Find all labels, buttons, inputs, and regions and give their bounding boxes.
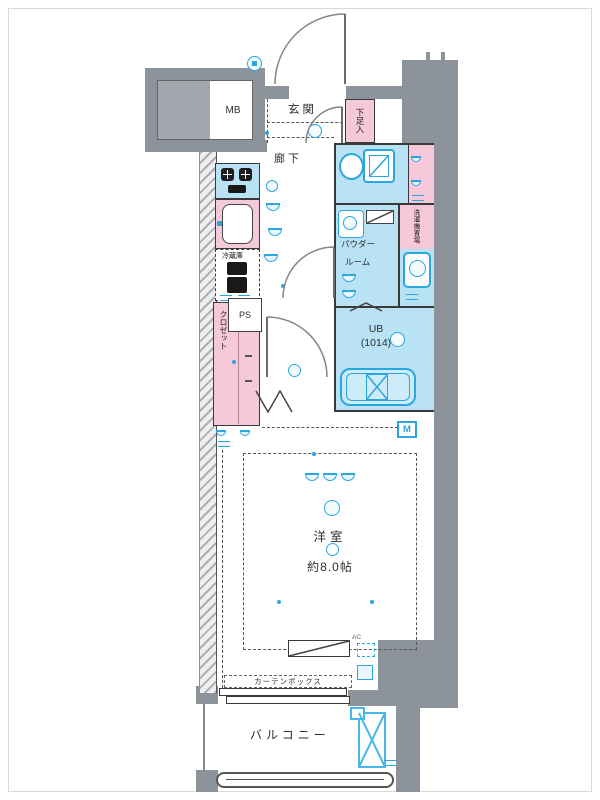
floorplan-page: MB 玄関 下足入 廊下 冷蔵庫 <box>0 0 600 800</box>
shower-icon <box>390 332 405 347</box>
light-icon-hall <box>288 364 301 377</box>
toilet-bowl-icon <box>339 153 364 180</box>
powder-room-label-2: ルーム <box>345 256 370 268</box>
wall-balcony-top-right <box>396 690 458 708</box>
wall-toilet-powder <box>334 203 434 205</box>
ceiling-light-icon <box>266 180 278 192</box>
entrance-step-dash-2 <box>267 137 334 138</box>
room-size-label: 約8.0帖 <box>245 558 415 575</box>
wall-vent-tick-1 <box>426 52 430 60</box>
hanger-mark <box>245 380 252 382</box>
powder-room-label-1: パウダー <box>341 238 375 250</box>
wall-vent-tick-2 <box>441 52 445 60</box>
bathtub-drain-box <box>366 374 388 400</box>
sliding-window-sash-1 <box>219 688 347 696</box>
dimension-mark <box>218 441 230 447</box>
pipe-space: PS <box>228 298 262 332</box>
closet-dot <box>232 360 236 364</box>
western-room-label: 洋室 <box>245 526 415 545</box>
refrigerator-label: 冷蔵庫 <box>222 251 243 261</box>
sliding-window-sash-2 <box>226 696 350 704</box>
wall-balcony-right <box>396 708 420 792</box>
wall-mb-bottom <box>145 140 267 152</box>
ac-unit-icon <box>357 643 375 657</box>
wall-ub-bottom <box>334 410 434 412</box>
wall-powder-laundry <box>398 205 400 306</box>
meter-badge-label: M <box>403 424 411 435</box>
ac-label: AC <box>352 634 361 641</box>
pipe-space-label: PS <box>239 310 251 320</box>
balcony-railing <box>216 772 394 788</box>
meter-badge: M <box>397 421 417 438</box>
wall-right <box>434 145 458 695</box>
stove-burner-icon <box>221 168 234 181</box>
wall-under-window <box>348 690 396 706</box>
laundry-space-label: 洗濯機置場 <box>410 209 420 244</box>
wall-mb-top <box>145 68 265 80</box>
ac-pipe-icon <box>357 665 373 680</box>
balcony-railing-line <box>226 779 384 780</box>
intercom-dot <box>252 61 257 66</box>
window-counter <box>288 640 350 657</box>
grill-icon <box>228 185 246 193</box>
wall-entrance-left <box>265 86 289 99</box>
balcony-label: バルコニー <box>250 726 330 743</box>
meter-box-shaft <box>158 81 210 139</box>
wall-powder-ub <box>334 306 434 308</box>
washbasin-bowl-icon <box>343 216 357 230</box>
water-heater-icon <box>358 712 386 768</box>
entrance-label: 玄関 <box>288 101 317 117</box>
sensor-dot <box>370 600 374 604</box>
stove-burner-icon <box>239 168 252 181</box>
wall-toilet-top <box>334 143 434 145</box>
wall-mb-right <box>253 68 265 152</box>
water-heater-valve-icon <box>350 707 365 720</box>
faucet-icon <box>217 221 222 226</box>
refrigerator-icon <box>227 262 247 275</box>
unit-bath-name: UB <box>336 322 416 336</box>
sensor-dot <box>281 284 285 288</box>
shoe-cabinet: 下足入 <box>345 99 375 143</box>
wall-entrance-right <box>346 86 402 99</box>
balcony-post-bottom <box>196 770 218 792</box>
mb-label: MB <box>214 80 252 140</box>
sensor-dot <box>277 600 281 604</box>
balcony-left-line <box>203 704 205 772</box>
shoe-cabinet-label: 下足入 <box>354 108 366 134</box>
wall-top-right-block <box>402 60 458 145</box>
dimension-mark <box>406 294 418 300</box>
counter-icon <box>366 210 394 224</box>
curtain-box-label: カーテンボックス <box>254 676 322 687</box>
toilet-tank-inner <box>369 155 389 177</box>
room-boundary-dash <box>262 427 398 428</box>
sensor-dot <box>265 131 269 135</box>
curtain-box: カーテンボックス <box>224 675 352 688</box>
dimension-mark <box>412 195 424 201</box>
hallway-label: 廊下 <box>274 150 302 166</box>
ceiling-dash-left <box>222 450 223 688</box>
entrance-step-dash-1 <box>267 122 343 123</box>
wall-hall-wet-divider <box>334 143 336 412</box>
light-outline-icon <box>326 543 339 556</box>
sink-icon <box>222 204 253 244</box>
ceiling-light-icon <box>324 500 340 516</box>
hanger-mark <box>245 355 252 357</box>
refrigerator-icon <box>227 277 247 293</box>
sensor-dot <box>312 452 316 456</box>
light-icon-entrance <box>308 124 322 138</box>
dimension-mark <box>384 760 396 766</box>
washing-machine-drum <box>409 260 426 277</box>
